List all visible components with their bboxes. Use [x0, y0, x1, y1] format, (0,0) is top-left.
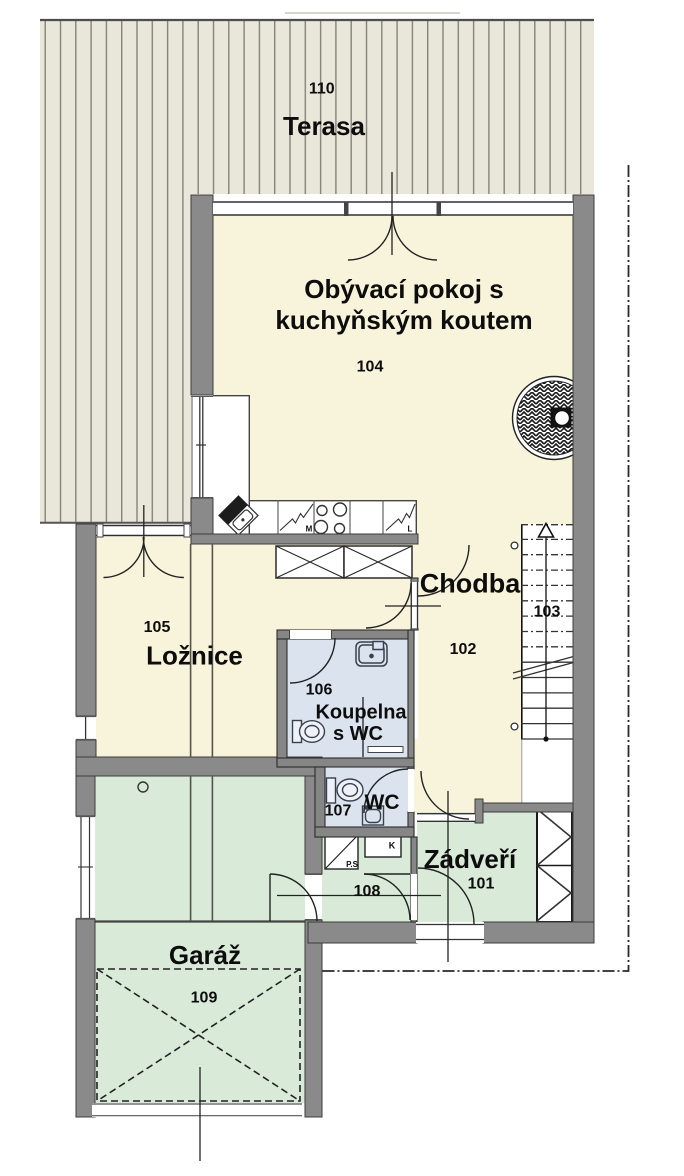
svg-text:Garáž: Garáž: [169, 940, 241, 970]
svg-text:s WC: s WC: [333, 723, 383, 745]
svg-text:M: M: [306, 525, 313, 534]
svg-text:103: 103: [534, 604, 561, 621]
svg-text:102: 102: [450, 641, 477, 658]
svg-text:108: 108: [354, 883, 381, 900]
svg-text:kuchyňským koutem: kuchyňským koutem: [275, 305, 532, 335]
svg-text:Terasa: Terasa: [283, 111, 365, 141]
svg-text:Chodba: Chodba: [420, 569, 521, 599]
svg-text:Zádveří: Zádveří: [424, 844, 517, 874]
svg-text:L: L: [408, 525, 413, 534]
svg-text:110: 110: [309, 81, 335, 98]
svg-text:107: 107: [325, 803, 352, 820]
svg-text:WC: WC: [365, 791, 400, 814]
svg-text:101: 101: [468, 876, 495, 893]
svg-text:104: 104: [357, 359, 384, 376]
svg-text:Koupelna: Koupelna: [315, 702, 407, 724]
svg-text:P.S: P.S: [346, 860, 359, 869]
svg-text:109: 109: [191, 990, 218, 1007]
svg-text:Ložnice: Ložnice: [146, 641, 243, 671]
svg-text:Obývací pokoj s: Obývací pokoj s: [304, 274, 503, 304]
svg-text:K: K: [389, 841, 396, 851]
svg-text:106: 106: [306, 682, 333, 699]
svg-text:105: 105: [144, 619, 171, 636]
